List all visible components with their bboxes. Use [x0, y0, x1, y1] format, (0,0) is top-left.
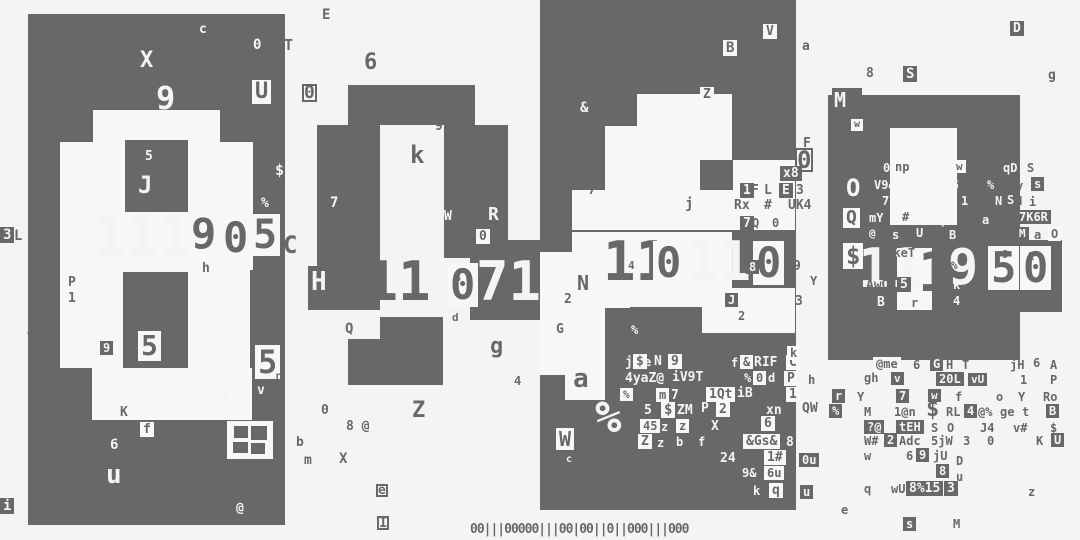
glyph: B — [1046, 404, 1059, 418]
glyph: 0u — [799, 453, 819, 467]
glyph: Rx — [734, 199, 750, 212]
glyph: f — [955, 391, 962, 403]
glyph: J4 — [980, 422, 994, 434]
glyph: U — [916, 227, 923, 239]
glyph: q — [864, 483, 871, 495]
glyph: g — [490, 336, 503, 358]
glyph: 6 — [110, 438, 118, 452]
glyph: N — [577, 273, 589, 293]
glyph: @ — [866, 227, 879, 240]
glyph: x8 — [780, 166, 802, 181]
glyph: 9 — [435, 120, 443, 133]
glyph: z — [676, 419, 689, 433]
glyph: e — [841, 504, 848, 516]
glyph: c — [196, 22, 210, 37]
glyph: 8 — [786, 436, 794, 449]
glyph: 9 — [916, 448, 929, 462]
glyph: 0 — [883, 162, 890, 174]
glyph: w — [864, 450, 871, 462]
glyph: G — [930, 357, 943, 371]
block-dark — [125, 140, 188, 212]
glyph: t — [221, 388, 229, 402]
glyph: jH — [1010, 359, 1024, 371]
glyph: k — [753, 485, 760, 497]
glyph: 5 — [138, 331, 161, 361]
glyph: 8 — [746, 260, 759, 274]
glyph: @me — [873, 357, 901, 371]
glyph: m — [304, 454, 312, 467]
glyph: m — [656, 388, 669, 402]
glyph: N — [651, 354, 665, 369]
glyph: 1 — [68, 292, 76, 305]
glyph: RIF — [754, 356, 777, 369]
glyph: AwO — [866, 279, 889, 292]
glyph: vU — [968, 373, 987, 386]
glyph: A — [27, 324, 35, 337]
glyph: v — [257, 384, 265, 397]
glyph: 7 — [882, 195, 889, 207]
glyph: :@keT — [879, 247, 915, 259]
glyph: j — [625, 356, 633, 369]
glyph: 1 — [918, 246, 951, 300]
glyph: k — [787, 346, 800, 360]
glyph: f — [698, 436, 705, 448]
glyph: 1@n — [894, 406, 916, 418]
glyph: r — [832, 389, 845, 403]
glyph: 4 — [628, 260, 635, 271]
glyph: z — [657, 437, 664, 449]
glyph: C — [283, 233, 297, 257]
glyph: $ — [926, 399, 939, 421]
glyph: b — [676, 436, 683, 448]
glyph: % — [620, 388, 633, 401]
glyph: 0 — [321, 404, 329, 417]
glyph: 1 — [961, 195, 968, 207]
glyph: 71 — [476, 255, 541, 309]
glyph: 1# — [764, 450, 786, 465]
glyph: 6 — [761, 416, 775, 431]
window-pane — [234, 426, 248, 438]
glyph: &Gs& — [743, 434, 780, 449]
glyph: 111 — [333, 255, 431, 309]
glyph: M — [864, 406, 871, 418]
glyph: o — [996, 391, 1003, 403]
glyph: & — [580, 101, 588, 115]
glyph: 7 — [330, 196, 338, 210]
window-pane — [251, 426, 268, 440]
glyph: 9 — [100, 341, 113, 355]
glyph: 2 — [884, 433, 897, 447]
glyph: 4 — [455, 274, 461, 284]
glyph: F — [751, 184, 759, 197]
glyph: 0 — [476, 229, 490, 244]
glyph: Y — [1018, 391, 1025, 403]
glyph: B — [723, 40, 737, 56]
glyph: $ — [661, 402, 675, 418]
glyph: % — [951, 260, 958, 271]
glyph: % — [939, 195, 946, 207]
glyph: & — [740, 355, 753, 369]
glyph: S — [903, 66, 917, 82]
glyph: d — [452, 312, 459, 323]
glyph: 0 — [987, 435, 994, 447]
glyph: 0 — [1020, 246, 1051, 290]
glyph: 0 — [220, 216, 251, 260]
glyph: i — [1029, 196, 1036, 208]
glyph: 5 — [897, 277, 911, 292]
glyph: T — [284, 38, 293, 53]
glyph: 0 — [772, 217, 779, 229]
glyph: U — [1051, 433, 1064, 447]
glyph: O — [1048, 227, 1061, 241]
glyph: u — [800, 485, 813, 499]
glyph: iV9T — [672, 371, 703, 384]
glyph: & — [936, 261, 943, 273]
glyph: T — [962, 359, 969, 371]
glyph: 2 — [1028, 251, 1035, 262]
glyph: 8 — [866, 67, 874, 80]
glyph: e — [376, 484, 388, 497]
glyph: o — [29, 359, 37, 372]
glyph: 8 — [936, 464, 949, 478]
glyph: 4 — [514, 375, 521, 387]
glyph: ge — [1000, 406, 1014, 418]
glyph: g — [1048, 69, 1056, 82]
glyph: 7 — [588, 184, 596, 197]
glyph: p — [941, 214, 948, 226]
glyph: 4yaZ@ — [625, 372, 664, 385]
glyph: 11 — [686, 235, 751, 289]
glyph: B — [949, 229, 956, 241]
glyph: J — [725, 293, 738, 307]
glyph: 7K6R — [1016, 210, 1051, 224]
glyph: w — [953, 160, 966, 173]
glyph: w — [851, 119, 863, 131]
glyph: N — [1015, 195, 1022, 207]
glyph: 9 — [668, 354, 682, 369]
glyph: 2 — [911, 162, 918, 174]
glyph: s — [1031, 177, 1044, 191]
glyph: 1 — [906, 179, 913, 191]
glyph: u — [106, 462, 122, 488]
glyph: 5 — [644, 404, 652, 417]
glyph: 2 — [738, 310, 745, 322]
glyph: V9& — [874, 179, 896, 191]
glyph: P — [68, 276, 76, 289]
block-dark — [348, 339, 443, 385]
glyph: qD — [1003, 162, 1017, 174]
glyph: UK4 — [788, 199, 811, 212]
glyph: # — [764, 199, 772, 212]
glyph: q — [769, 483, 783, 498]
glyph: U — [252, 80, 271, 104]
glyph: z — [1028, 486, 1035, 498]
glyph: 8E — [762, 166, 778, 179]
glyph: tEH — [896, 420, 924, 434]
glyph: V — [763, 24, 777, 39]
glyph: 9& — [742, 467, 756, 479]
glyph: W# — [864, 435, 878, 447]
glyph: 1G — [944, 179, 958, 191]
glyph: Q — [345, 322, 353, 336]
glyph: a — [982, 214, 989, 226]
glyph: RL — [946, 406, 960, 418]
glyph: v — [891, 372, 904, 385]
glyph: 20L — [936, 372, 964, 386]
glyph: X — [140, 50, 153, 72]
glyph: 5jW — [931, 435, 953, 447]
glyph: $ — [275, 163, 284, 178]
glyph: c — [566, 455, 572, 465]
block-light — [572, 190, 733, 230]
glyph: P — [1050, 374, 1057, 386]
glyph: 111 — [93, 210, 191, 264]
glyph: J — [138, 173, 152, 197]
glyph: E — [322, 8, 330, 22]
glyph: s — [903, 517, 916, 531]
glyph: 9 — [1002, 249, 1009, 260]
block-dark — [828, 330, 898, 355]
glyph: O — [947, 422, 954, 434]
glyph: % — [829, 404, 842, 418]
glyph: K — [117, 405, 131, 420]
glyph: 2 — [716, 402, 730, 417]
glyph: 1 — [786, 387, 800, 402]
glyph: 9 — [156, 82, 175, 114]
glyph: s — [892, 229, 899, 241]
glyph: M — [834, 90, 846, 110]
glyph: 8 @ — [346, 420, 369, 433]
glyph: 6 — [1033, 357, 1040, 369]
glyph: c — [748, 168, 755, 180]
glyph: @ — [236, 502, 244, 515]
noise-canvas: 111905C111071H110110111950c0TX9U0E6$%3L5… — [0, 0, 1080, 540]
glyph: gh — [864, 372, 878, 384]
glyph: 79b — [897, 195, 919, 207]
glyph: X — [339, 452, 347, 466]
glyph: A — [1050, 359, 1057, 371]
glyph: h — [202, 262, 210, 275]
glyph: L — [764, 184, 772, 197]
glyph: 4 — [953, 295, 960, 307]
glyph: 1 — [1020, 374, 1027, 386]
glyph: 5 — [250, 214, 280, 256]
glyph: W — [444, 210, 452, 223]
glyph: 0 — [653, 241, 684, 285]
glyph: Z — [638, 434, 652, 449]
glyph: I — [377, 516, 389, 530]
block-dark — [380, 317, 443, 341]
glyph: 6 — [906, 450, 913, 462]
glyph: f — [731, 357, 738, 369]
glyph: S — [1027, 162, 1034, 174]
glyph: 0 — [753, 371, 766, 385]
glyph: S — [931, 422, 938, 434]
glyph: 0 — [302, 84, 317, 102]
glyph: 0 — [253, 38, 261, 52]
glyph: j — [682, 196, 696, 212]
glyph: a — [1034, 229, 1041, 241]
glyph: M — [1016, 227, 1029, 240]
glyph: Z — [412, 400, 425, 422]
glyph: Y — [810, 275, 817, 287]
glyph: 3 — [0, 227, 14, 243]
glyph: Adc — [899, 435, 921, 447]
glyph: h — [808, 374, 815, 386]
glyph: % — [744, 372, 751, 384]
glyph: v# — [1013, 422, 1027, 434]
glyph: H — [308, 268, 330, 296]
glyph: 2 — [564, 293, 572, 306]
glyph: 8%15 — [906, 481, 943, 496]
glyph: np — [892, 160, 912, 174]
glyph: B — [874, 295, 888, 310]
glyph: $I3 — [918, 212, 940, 224]
glyph: Z — [700, 87, 714, 102]
glyph: 3 — [796, 184, 804, 197]
glyph: k — [410, 143, 424, 167]
glyph: % — [595, 396, 622, 440]
barcode-text: 00|||00000|||00|00||0||000|||000 — [470, 523, 688, 536]
window-pane — [251, 443, 265, 454]
glyph: mY — [869, 212, 883, 224]
glyph: 5 — [145, 150, 153, 163]
glyph: a — [573, 366, 589, 392]
glyph: % — [258, 196, 272, 211]
glyph: 1 — [674, 310, 681, 322]
glyph: % — [628, 323, 641, 337]
glyph: 3 — [944, 481, 958, 496]
glyph: Q — [843, 208, 860, 228]
glyph: k — [953, 279, 960, 291]
glyph: X — [711, 420, 719, 433]
glyph: 3 — [963, 435, 970, 447]
glyph: # — [899, 210, 912, 224]
glyph: a — [802, 40, 810, 53]
glyph: t — [1022, 406, 1029, 418]
glyph: y — [1016, 180, 1023, 192]
glyph: ?@ — [864, 420, 884, 434]
glyph: Ro — [1043, 391, 1057, 403]
glyph: 6 — [913, 359, 920, 371]
glyph: 7 — [671, 389, 679, 402]
glyph: d — [768, 372, 775, 384]
glyph: r — [275, 372, 281, 382]
glyph: @% — [978, 406, 992, 418]
glyph: R — [488, 206, 499, 224]
glyph: 45 — [640, 419, 660, 433]
glyph: E — [779, 183, 793, 198]
glyph: jU — [933, 450, 947, 462]
glyph: QW — [802, 402, 818, 415]
glyph: p — [929, 179, 936, 191]
glyph: O — [846, 176, 860, 200]
glyph: 24 — [720, 452, 736, 465]
glyph: D — [956, 455, 963, 467]
glyph: % — [987, 179, 994, 191]
glyph: W — [556, 428, 574, 450]
glyph: b — [296, 436, 304, 449]
glyph: G — [556, 323, 564, 336]
glyph: r — [911, 297, 918, 309]
glyph: i — [0, 498, 14, 514]
glyph: z — [661, 421, 668, 433]
glyph: 3 — [795, 295, 803, 308]
glyph: Q — [752, 217, 759, 229]
glyph: 9 — [793, 260, 801, 273]
block-dark — [950, 330, 1020, 360]
glyph: M — [953, 518, 960, 530]
glyph: 9 — [188, 212, 219, 256]
glyph: 7 — [896, 389, 909, 403]
block-light — [540, 252, 605, 375]
glyph: 6u — [764, 466, 784, 480]
glyph: D — [1010, 21, 1024, 36]
glyph: N — [995, 195, 1002, 207]
glyph: Y — [857, 391, 864, 403]
window-pane — [233, 442, 248, 453]
glyph: $ — [843, 243, 863, 269]
window-panes-icon — [227, 421, 273, 459]
glyph: L — [14, 229, 22, 243]
glyph: 4 — [964, 404, 977, 418]
glyph: f — [140, 422, 154, 437]
block-dark — [348, 85, 475, 125]
glyph: iB — [737, 387, 753, 400]
glyph: P — [701, 402, 709, 415]
glyph: ZM — [677, 404, 693, 417]
glyph: 0 — [447, 263, 478, 307]
glyph: 6 — [364, 52, 377, 74]
glyph: K — [1036, 435, 1043, 447]
glyph: P — [784, 371, 798, 386]
glyph: 1Qt — [706, 387, 735, 402]
glyph: H — [946, 359, 953, 371]
glyph: wU — [891, 483, 905, 495]
